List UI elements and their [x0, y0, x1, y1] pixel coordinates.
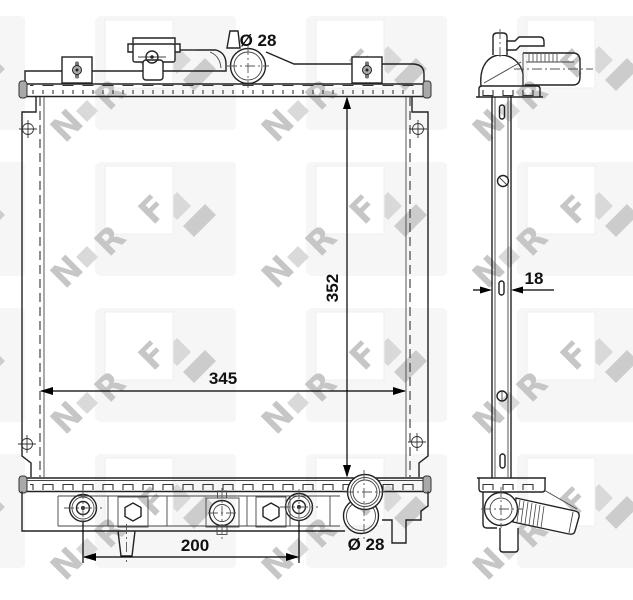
radiator-drawing-page: N R F: [0, 0, 633, 600]
dim-label-mount-spacing: 200: [181, 536, 209, 555]
radiator-technical-drawing: N R F: [0, 0, 633, 600]
dim-label-core-height: 352: [323, 274, 342, 302]
overflow-tab: [227, 31, 240, 48]
dim-label-top-inlet-diameter: Ø 28: [240, 31, 277, 50]
dim-label-core-width: 345: [209, 369, 237, 388]
dim-label-bottom-outlet-diameter: Ø 28: [348, 535, 385, 554]
dim-label-core-depth: 18: [525, 269, 544, 288]
bottom-foot: [500, 528, 518, 552]
